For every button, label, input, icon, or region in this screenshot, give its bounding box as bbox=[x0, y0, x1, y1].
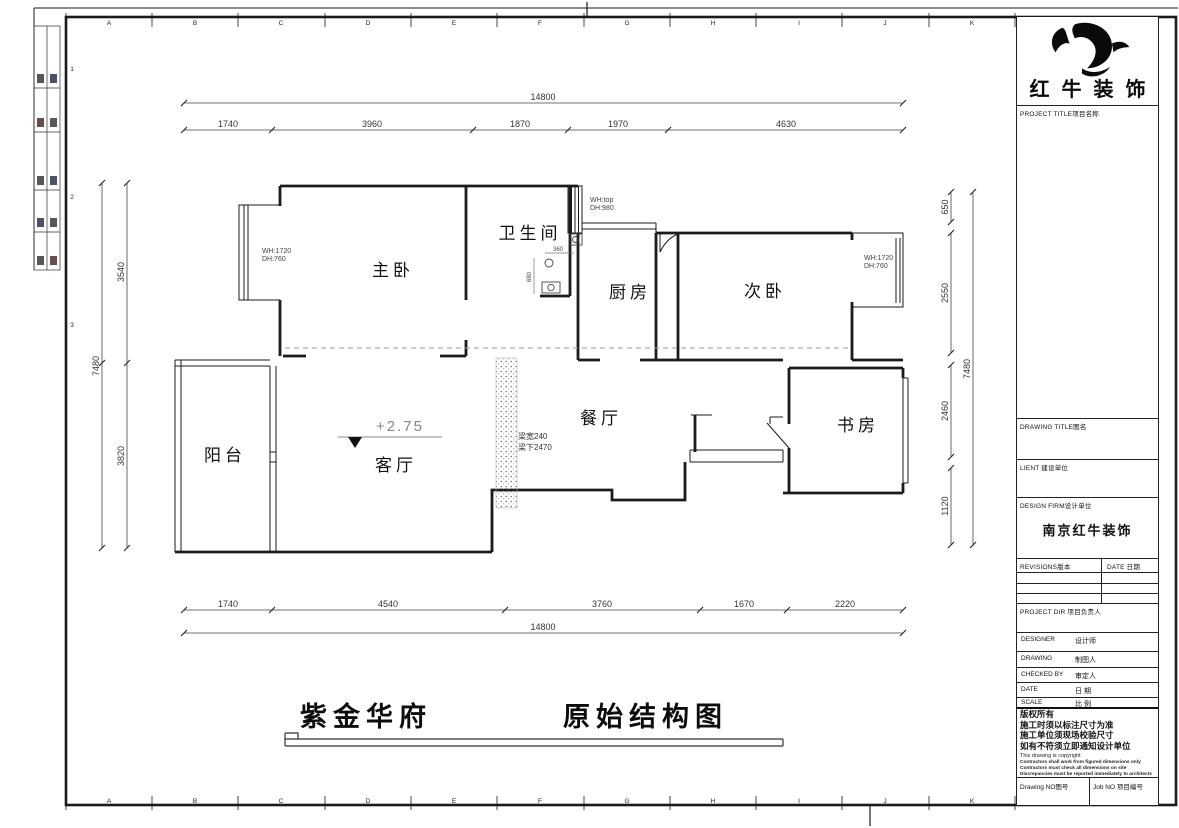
grid-letter: C bbox=[279, 20, 284, 27]
drawing-label: DRAWING bbox=[1021, 655, 1052, 662]
dim-value: 1740 bbox=[218, 599, 238, 609]
level-marker: +2.75 bbox=[338, 418, 442, 448]
logo-section: 红牛装饰 bbox=[1017, 17, 1158, 105]
bull-logo bbox=[1029, 19, 1149, 77]
grid-letter: H bbox=[711, 20, 716, 27]
dim-value: 1740 bbox=[218, 119, 238, 129]
dim-value: 4630 bbox=[776, 119, 796, 129]
dim-value: 7480 bbox=[962, 359, 972, 379]
date-cn: 日 期 bbox=[1075, 686, 1091, 696]
design-firm-value: 南京红牛装饰 bbox=[1017, 520, 1158, 539]
grid-numbers-left: 1 2 3 bbox=[70, 66, 74, 329]
drawing-title-section: DRAWING TITLE图名 bbox=[1017, 418, 1158, 459]
room-label: 客厅 bbox=[375, 456, 417, 475]
signature-strip bbox=[34, 26, 60, 270]
beam-note: 梁下2470 bbox=[518, 443, 552, 452]
copyright-line: 如有不符须立即通知设计单位 bbox=[1017, 741, 1158, 752]
room-label: 次卧 bbox=[744, 282, 786, 301]
checked-cn: 审定人 bbox=[1075, 671, 1096, 681]
window-note: DH:980 bbox=[590, 205, 614, 212]
dim-value: 14800 bbox=[530, 92, 555, 102]
dim-value: 650 bbox=[940, 199, 950, 214]
structural-column bbox=[496, 358, 517, 508]
grid-letter: J bbox=[883, 20, 886, 27]
drawing-cn: 制图人 bbox=[1075, 655, 1096, 665]
grid-letter: B bbox=[193, 20, 197, 27]
design-firm-label: DESIGN FIRM设计单位 bbox=[1017, 498, 1158, 510]
fixtures bbox=[534, 234, 582, 294]
dim-value: 7480 bbox=[91, 356, 101, 376]
window-note: DH:760 bbox=[864, 263, 888, 270]
sheet-title: 紫金华府 原始结构图 bbox=[285, 701, 783, 746]
job-no-label: Job NO 项目编号 bbox=[1093, 781, 1143, 791]
room-label: 书房 bbox=[837, 416, 879, 435]
room-label: 厨房 bbox=[609, 283, 651, 302]
dim-value: 14800 bbox=[530, 622, 555, 632]
design-firm-section: DESIGN FIRM设计单位 南京红牛装饰 bbox=[1017, 497, 1158, 558]
dining-wall-band bbox=[690, 450, 783, 462]
title-block: 红牛装饰 PROJECT TITLE项目名称 DRAWING TITLE图名 L… bbox=[1016, 17, 1159, 805]
grid-letter: K bbox=[970, 20, 975, 27]
grid-letter: E bbox=[452, 20, 457, 27]
project-dir-label: PROJECT DIR 项目负责人 bbox=[1017, 604, 1158, 616]
drawing-name: 原始结构图 bbox=[563, 701, 728, 732]
dim-value: 3820 bbox=[116, 446, 126, 466]
kitchen-window bbox=[582, 223, 656, 233]
project-title-section: PROJECT TITLE项目名称 bbox=[1017, 105, 1158, 418]
revisions-label: REVISIONS版本 bbox=[1017, 559, 1071, 571]
checked-row: CHECKED BY 审定人 bbox=[1017, 667, 1158, 682]
scale-label: SCALE bbox=[1021, 699, 1042, 706]
window-note: WH:top bbox=[590, 197, 613, 204]
drawing-no-divider bbox=[1089, 778, 1090, 805]
beam-note: 梁宽240 bbox=[518, 431, 548, 441]
drawing-row: DRAWING 制图人 bbox=[1017, 651, 1158, 667]
designer-cn: 设计师 bbox=[1075, 636, 1096, 646]
project-dir-section: PROJECT DIR 项目负责人 bbox=[1017, 603, 1158, 632]
dim-value: 1870 bbox=[510, 119, 530, 129]
copyright-en-line: Contractors must check all dimensions on… bbox=[1017, 766, 1158, 771]
grid-letter: C bbox=[279, 798, 284, 805]
dim-value: 3960 bbox=[362, 119, 382, 129]
balcony-slider bbox=[270, 366, 276, 552]
study-door-leaf bbox=[767, 423, 789, 448]
copyright-en-line: This drawing is copyright bbox=[1017, 753, 1158, 759]
grid-letter: J bbox=[883, 798, 886, 805]
room-label: 主卧 bbox=[372, 261, 414, 280]
bath-dim: 680 bbox=[527, 271, 533, 282]
drawing-no-section: Drawing NO图号 Job NO 项目编号 bbox=[1017, 777, 1158, 805]
copyright-en-line: Contractors shall work from figured dime… bbox=[1017, 760, 1158, 765]
floorplan-sheet: A B C D E F G H I J K A B C D E F G H I … bbox=[0, 0, 1179, 828]
dim-value: 3760 bbox=[592, 599, 612, 609]
dim-value: 2460 bbox=[940, 401, 950, 421]
grid-letter: F bbox=[538, 20, 542, 27]
drawing-title-label: DRAWING TITLE图名 bbox=[1017, 419, 1158, 431]
project-title-label: PROJECT TITLE项目名称 bbox=[1017, 106, 1158, 118]
dim-value: 1970 bbox=[608, 119, 628, 129]
room-label: 餐厅 bbox=[580, 409, 622, 428]
designer-row: DESIGNER 设计师 bbox=[1017, 632, 1158, 651]
designer-label: DESIGNER bbox=[1021, 636, 1055, 643]
grid-number: 2 bbox=[70, 194, 74, 201]
grid-letter: A bbox=[107, 20, 112, 27]
dim-value: 2220 bbox=[835, 599, 855, 609]
grid-letter: F bbox=[538, 798, 542, 805]
dim-value: 2550 bbox=[940, 283, 950, 303]
bath-basin bbox=[542, 282, 560, 293]
revisions-divider bbox=[1101, 559, 1102, 603]
date-row: DATE 日 期 bbox=[1017, 682, 1158, 697]
grid-letter: A bbox=[107, 798, 112, 805]
scale-row: SCALE 比 例 bbox=[1017, 697, 1158, 707]
client-section: LIENT 建设单位 bbox=[1017, 459, 1158, 497]
grid-letter: G bbox=[624, 20, 629, 27]
grid-letter: B bbox=[193, 798, 197, 805]
grid-letter: I bbox=[798, 20, 800, 27]
dim-value: 4540 bbox=[378, 599, 398, 609]
grid-letter: E bbox=[452, 798, 457, 805]
grid-letters-top: A B C D E F G H I J K bbox=[107, 20, 975, 27]
level-value: +2.75 bbox=[376, 418, 424, 435]
dim-value: 1670 bbox=[734, 599, 754, 609]
checked-label: CHECKED BY bbox=[1021, 671, 1063, 678]
project-name: 紫金华府 bbox=[300, 701, 432, 732]
revisions-section: REVISIONS版本 DATE 日期 bbox=[1017, 558, 1158, 603]
bedroom2-bay-window bbox=[852, 233, 903, 307]
title-underline bbox=[285, 733, 783, 746]
grid-number: 1 bbox=[70, 66, 74, 73]
room-label: 卫生间 bbox=[499, 224, 562, 243]
copyright-line: 施工时须以标注尺寸为准 bbox=[1017, 720, 1158, 731]
grid-number: 3 bbox=[70, 322, 74, 329]
bath-drain bbox=[545, 259, 553, 267]
date-label: DATE bbox=[1021, 686, 1038, 693]
drawing-no-label: Drawing NO图号 bbox=[1020, 781, 1068, 791]
client-label: LIENT 建设单位 bbox=[1017, 460, 1158, 472]
company-name: 红牛装饰 bbox=[1017, 73, 1158, 102]
dim-value: 1120 bbox=[940, 496, 950, 515]
room-label: 阳台 bbox=[204, 446, 246, 465]
revisions-date-label: DATE 日期 bbox=[1104, 559, 1140, 571]
study-window bbox=[903, 378, 908, 483]
window-note: WH:1720 bbox=[864, 255, 893, 262]
kitchen-door-leaf bbox=[660, 233, 678, 252]
grid-letter: K bbox=[970, 798, 975, 805]
bath-dim: 360 bbox=[553, 247, 564, 253]
grid-letter: D bbox=[366, 798, 371, 805]
copyright-section: 版权所有 施工时须以标注尺寸为准 施工单位须现场校验尺寸 如有不符须立即通知设计… bbox=[1017, 707, 1158, 777]
grid-letter: D bbox=[366, 20, 371, 27]
copyright-line: 施工单位须现场校验尺寸 bbox=[1017, 730, 1158, 741]
dim-value: 3540 bbox=[116, 262, 126, 282]
grid-letter: I bbox=[798, 798, 800, 805]
grid-letter: G bbox=[624, 798, 629, 805]
grid-letter: H bbox=[711, 798, 716, 805]
copyright-line: 版权所有 bbox=[1017, 709, 1158, 720]
window-note: WH:1720 bbox=[262, 248, 291, 255]
window-note: DH:760 bbox=[262, 256, 286, 263]
